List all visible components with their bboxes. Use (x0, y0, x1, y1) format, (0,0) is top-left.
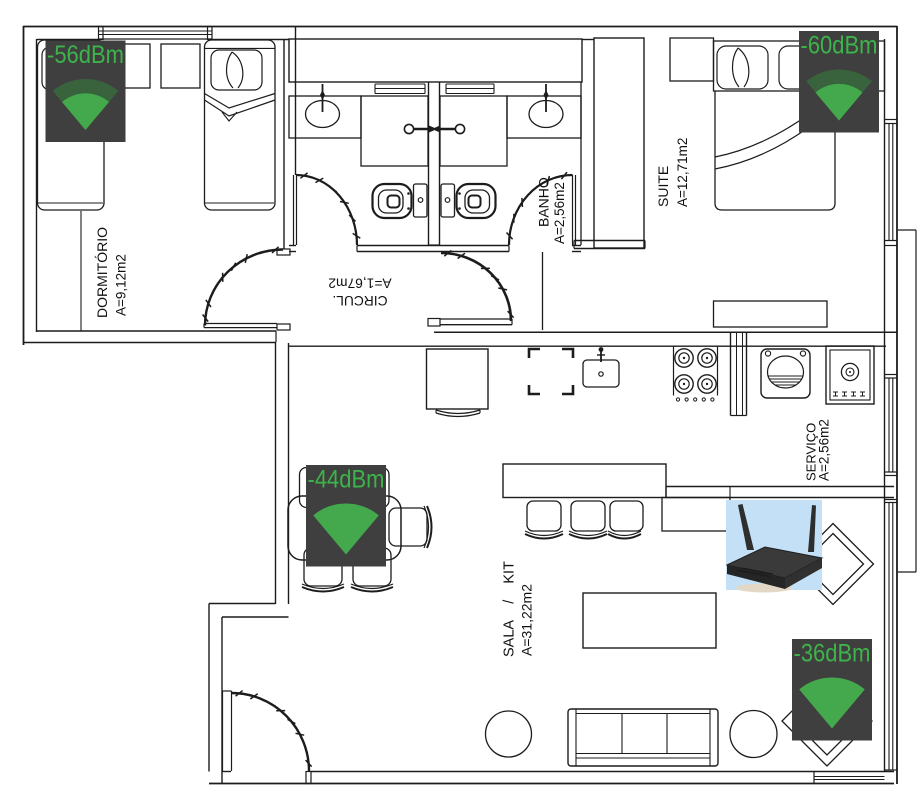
svg-text:A=9,12m2: A=9,12m2 (114, 254, 129, 316)
svg-text:BANHO: BANHO (536, 177, 552, 227)
svg-text:-60dBm: -60dBm (801, 32, 878, 60)
svg-text:DORMITÓRIO: DORMITÓRIO (94, 227, 110, 318)
svg-text:-44dBm: -44dBm (308, 466, 385, 494)
svg-text:-36dBm: -36dBm (794, 640, 871, 668)
svg-text:A=2,56m2: A=2,56m2 (817, 419, 832, 481)
svg-text:A=2,56m2: A=2,56m2 (552, 182, 567, 244)
svg-text:A=31,22m2: A=31,22m2 (519, 584, 535, 656)
svg-text:A=12,71m2: A=12,71m2 (675, 138, 690, 207)
svg-text:-56dBm: -56dBm (47, 41, 124, 69)
svg-text:SUITE: SUITE (655, 166, 671, 207)
svg-text:SALA / KIT: SALA / KIT (502, 561, 518, 657)
